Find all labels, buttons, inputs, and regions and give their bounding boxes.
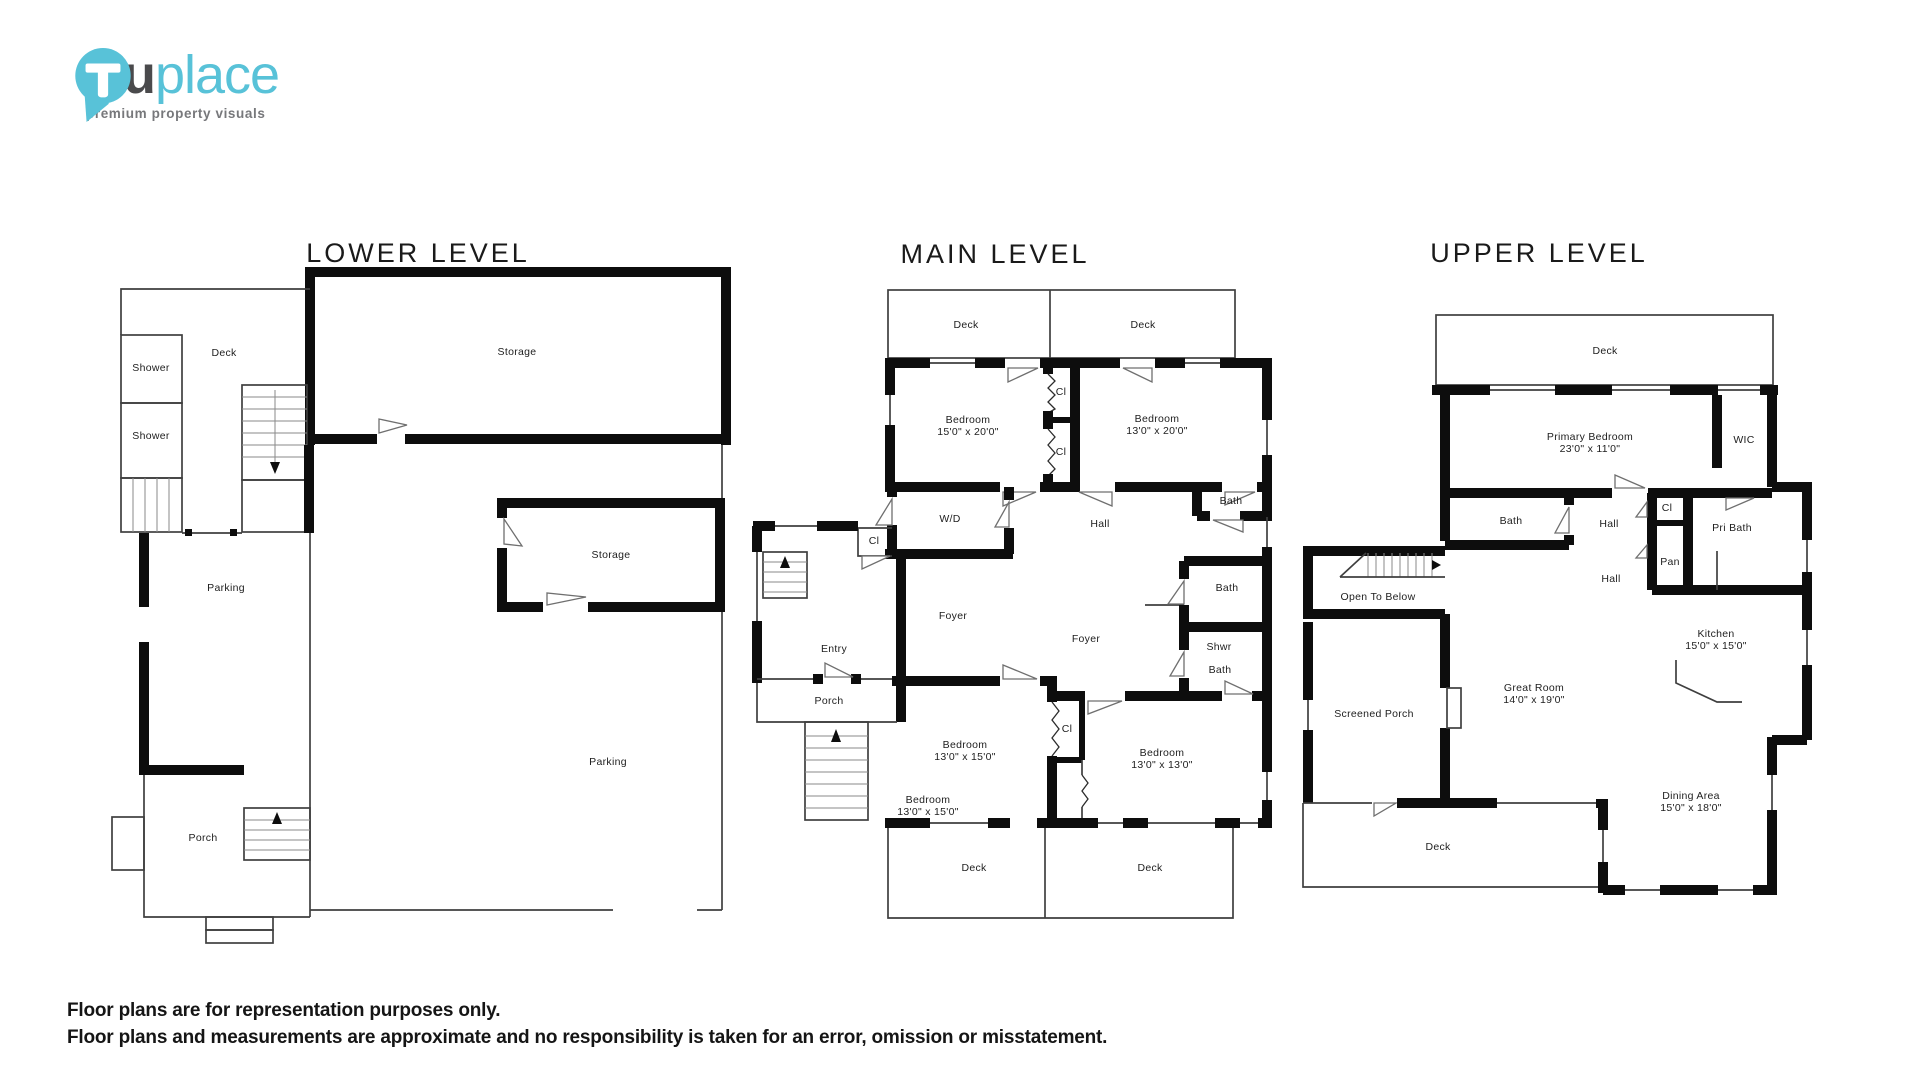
disclaimer-line-1: Floor plans are for representation purpo… xyxy=(67,997,1107,1024)
floorplan-page: truplace premium property visuals LOWER … xyxy=(0,0,1920,1080)
truplace-logo: truplace premium property visuals xyxy=(72,46,279,121)
brand-place: place xyxy=(155,45,279,105)
truplace-pin-icon xyxy=(72,46,134,124)
upper-level-plan xyxy=(1295,240,1830,940)
lower-level-plan xyxy=(95,255,740,955)
disclaimer-text: Floor plans are for representation purpo… xyxy=(67,997,1107,1051)
main-level-plan xyxy=(745,240,1290,940)
disclaimer-line-2: Floor plans and measurements are approxi… xyxy=(67,1024,1107,1051)
